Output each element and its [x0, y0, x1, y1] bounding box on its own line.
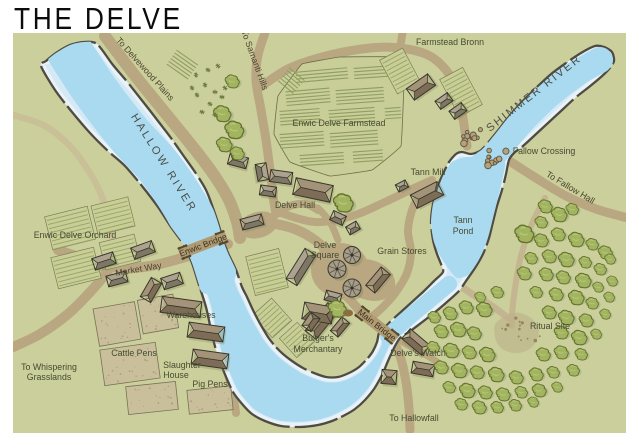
- svg-text:THE DELVE: THE DELVE: [14, 2, 183, 36]
- svg-text:House: House: [163, 370, 189, 380]
- svg-text:Grain Stores: Grain Stores: [377, 246, 427, 256]
- svg-text:Warehouses: Warehouses: [166, 310, 216, 320]
- svg-text:Pond: Pond: [453, 226, 474, 236]
- svg-text:Tann: Tann: [453, 215, 472, 225]
- svg-text:Cattle Pens: Cattle Pens: [111, 348, 157, 358]
- svg-text:Delve: Delve: [314, 240, 337, 250]
- svg-text:Fallow Crossing: Fallow Crossing: [513, 146, 576, 156]
- svg-text:Farmstead Bronn: Farmstead Bronn: [416, 37, 484, 47]
- svg-text:Tann Mill: Tann Mill: [411, 167, 446, 177]
- svg-text:Square: Square: [311, 250, 339, 260]
- svg-text:Merchantary: Merchantary: [294, 344, 343, 354]
- svg-text:Delve's Watch: Delve's Watch: [390, 348, 446, 358]
- svg-text:To Hallowfall: To Hallowfall: [389, 413, 438, 423]
- svg-text:Ritual Site: Ritual Site: [530, 321, 570, 331]
- svg-text:Grasslands: Grasslands: [27, 372, 72, 382]
- svg-text:Delve Hall: Delve Hall: [275, 200, 315, 210]
- svg-text:Enwic Delve Orchard: Enwic Delve Orchard: [34, 230, 117, 240]
- svg-text:Bulger's: Bulger's: [302, 333, 334, 343]
- svg-text:Slaughter: Slaughter: [163, 360, 201, 370]
- svg-text:Pig Pens: Pig Pens: [192, 379, 228, 389]
- svg-text:To Whispering: To Whispering: [21, 362, 77, 372]
- svg-text:Enwic Delve Farmstead: Enwic Delve Farmstead: [293, 118, 386, 128]
